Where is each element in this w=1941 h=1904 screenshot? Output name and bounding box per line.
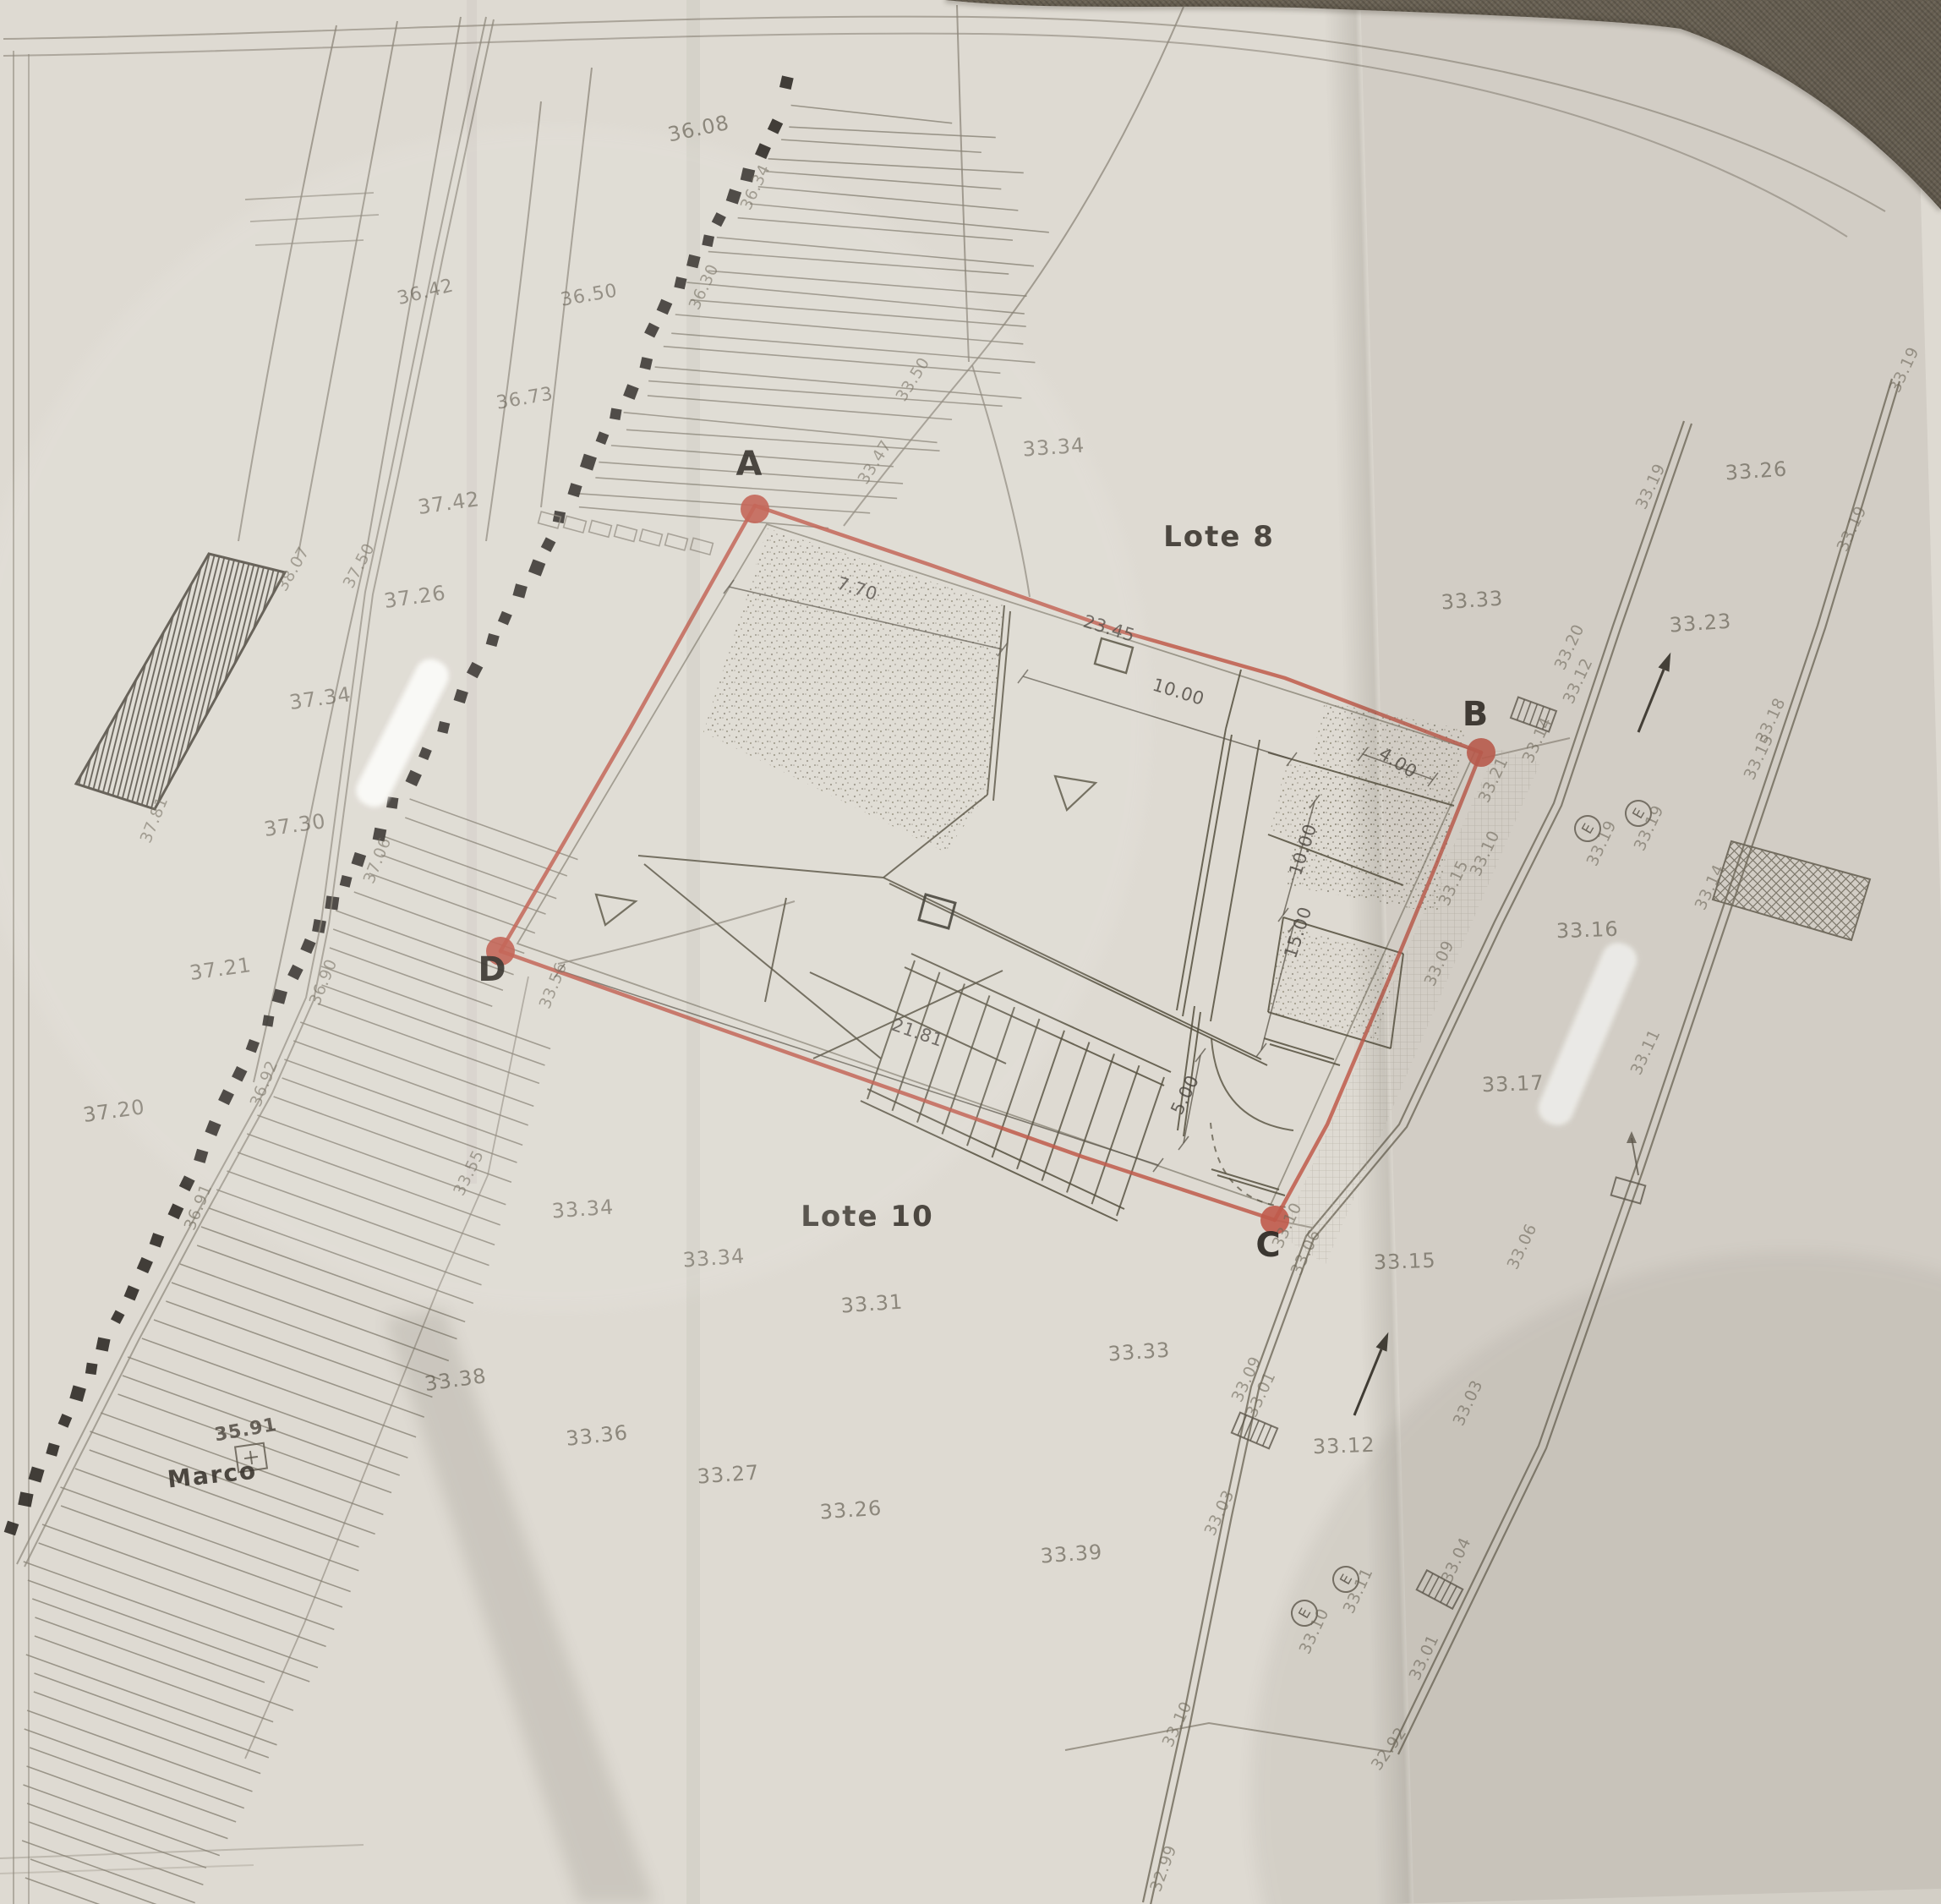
- label-lote-8: Lote 8: [1163, 520, 1275, 554]
- elevation-label: 33.27: [697, 1460, 760, 1488]
- boundary-square: [85, 1363, 98, 1376]
- corner-letter-C: C: [1255, 1226, 1280, 1265]
- elevation-label: 33.33: [1107, 1338, 1171, 1365]
- site-plan-svg: EEEE 36.0836.4236.5036.7337.4237.2637.34…: [0, 0, 1941, 1904]
- elevation-label: 33.31: [840, 1289, 904, 1317]
- boundary-square: [18, 1491, 33, 1507]
- boundary-square: [96, 1337, 110, 1351]
- elevation-label: 33.26: [819, 1496, 883, 1524]
- photographed-survey-plan: EEEE 36.0836.4236.5036.7337.4237.2637.34…: [0, 0, 1941, 1904]
- elevation-label: 33.39: [1040, 1540, 1103, 1568]
- paper-highlight: [0, 127, 1150, 1310]
